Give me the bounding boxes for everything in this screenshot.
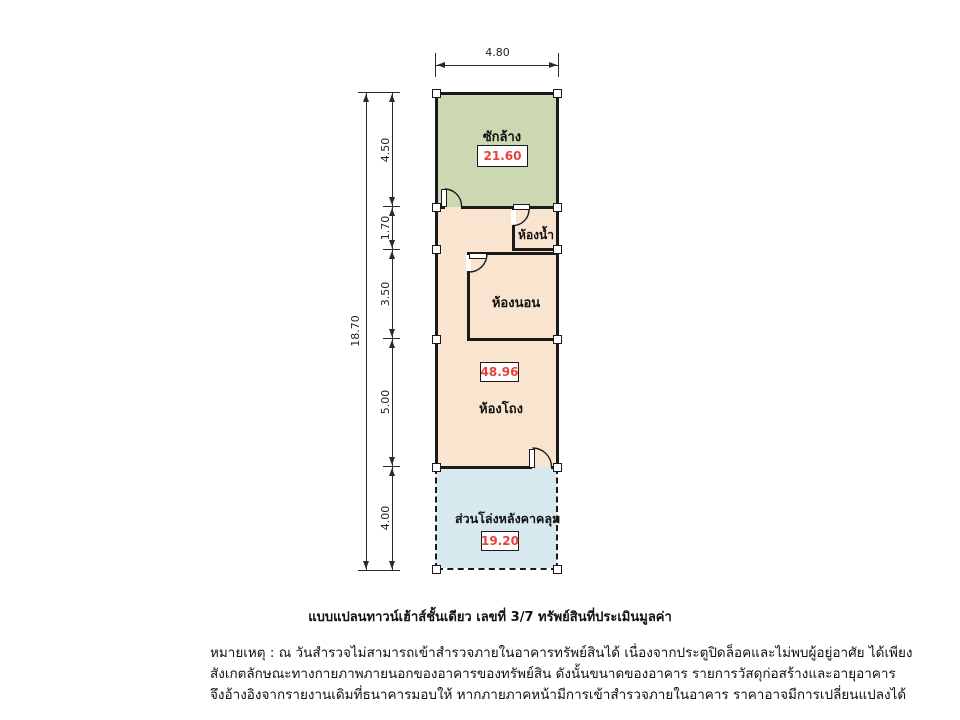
- bathroom-label: ห้องน้ำ: [506, 226, 566, 245]
- floor-plan-page: 4.80 18.70 4.50 1.70 3.50 5.00 4.00 ซักล…: [0, 0, 960, 720]
- dim-value-segment: 1.70: [379, 208, 393, 248]
- wall-laundry-bottom-segment: [461, 206, 559, 209]
- hall-area-value: 48.96: [480, 362, 519, 382]
- dim-arrow: [549, 62, 557, 68]
- dim-value-total-height: 18.70: [349, 311, 363, 351]
- corner-marker: [553, 463, 562, 472]
- dim-arrow: [389, 329, 395, 337]
- dim-cap: [383, 466, 400, 467]
- laundry-area-value: 21.60: [477, 145, 528, 167]
- dim-arrow: [389, 561, 395, 569]
- corner-marker: [432, 245, 441, 254]
- dim-value-top-width: 4.80: [455, 46, 540, 59]
- dim-cap: [383, 570, 400, 571]
- bathroom-door-opening: [511, 210, 516, 225]
- hall-door-leaf: [529, 449, 535, 468]
- covered-open-area-text: 19.20: [481, 534, 519, 548]
- note-line-3: จึงอ้างอิงจากรายงานเดิมที่ธนาคารมอบให้ ห…: [210, 683, 750, 705]
- wall-left: [435, 92, 438, 469]
- wall-bedroom-bottom: [467, 338, 559, 341]
- corner-marker: [432, 335, 441, 344]
- plan-caption: แบบแปลนทาวน์เฮ้าส์ชั้นเดียว เลขที่ 3/7 ท…: [200, 606, 780, 627]
- hall-area-text: 48.96: [481, 365, 519, 379]
- wall-bedroom-left: [467, 271, 470, 341]
- note-line-2: สังเกตลักษณะทางกายภาพภายนอกของอาคารของทร…: [210, 662, 750, 684]
- dashed-boundary-bottom: [437, 568, 557, 570]
- corner-marker: [432, 463, 441, 472]
- covered-open-area-label: ส่วนโล่งหลังคาคลุม: [455, 509, 545, 529]
- dim-arrow: [389, 468, 395, 476]
- dim-value-segment: 4.00: [379, 498, 393, 538]
- dim-tick: [435, 53, 436, 77]
- bedroom-door-leaf: [469, 253, 487, 259]
- bathroom-door-leaf: [513, 204, 530, 210]
- dim-arrow: [389, 251, 395, 259]
- corner-marker: [553, 89, 562, 98]
- dim-value-segment: 4.50: [379, 130, 393, 170]
- laundry-room-label: ซักล้าง: [460, 126, 544, 147]
- corner-marker: [432, 565, 441, 574]
- wall-right: [556, 92, 559, 469]
- corner-marker: [432, 203, 441, 212]
- dim-arrow: [363, 94, 369, 102]
- dim-cap: [383, 206, 400, 207]
- dim-cap: [383, 249, 400, 250]
- note-line-1: หมายเหตุ : ณ วันสำรวจไม่สามารถเข้าสำรวจภ…: [210, 641, 750, 663]
- corner-marker: [432, 89, 441, 98]
- interior-fill: [436, 207, 557, 467]
- corner-marker: [553, 335, 562, 344]
- dim-arrow: [363, 561, 369, 569]
- dim-value-segment: 5.00: [379, 382, 393, 422]
- dim-line-overall: [366, 92, 367, 570]
- dim-line-top: [435, 65, 559, 66]
- corner-marker: [553, 203, 562, 212]
- dim-value-segment: 3.50: [379, 274, 393, 314]
- hall-label: ห้องโถง: [471, 398, 531, 419]
- dim-arrow: [389, 457, 395, 465]
- wall-hall-bottom-segment: [435, 466, 532, 469]
- corner-marker: [553, 565, 562, 574]
- dim-arrow: [389, 197, 395, 205]
- dim-arrow: [389, 94, 395, 102]
- dim-arrow: [389, 340, 395, 348]
- wall-bathroom-bottom: [512, 248, 559, 251]
- bedroom-label: ห้องนอน: [486, 292, 546, 313]
- dim-cap: [383, 92, 400, 93]
- corner-marker: [553, 245, 562, 254]
- dim-tick: [558, 53, 559, 77]
- dim-arrow: [437, 62, 445, 68]
- covered-open-area-value: 19.20: [481, 531, 519, 551]
- wall-top: [435, 92, 559, 95]
- laundry-door-leaf: [441, 189, 447, 207]
- dim-cap: [383, 338, 400, 339]
- dashed-boundary-left: [435, 468, 437, 569]
- laundry-area-text: 21.60: [484, 149, 522, 163]
